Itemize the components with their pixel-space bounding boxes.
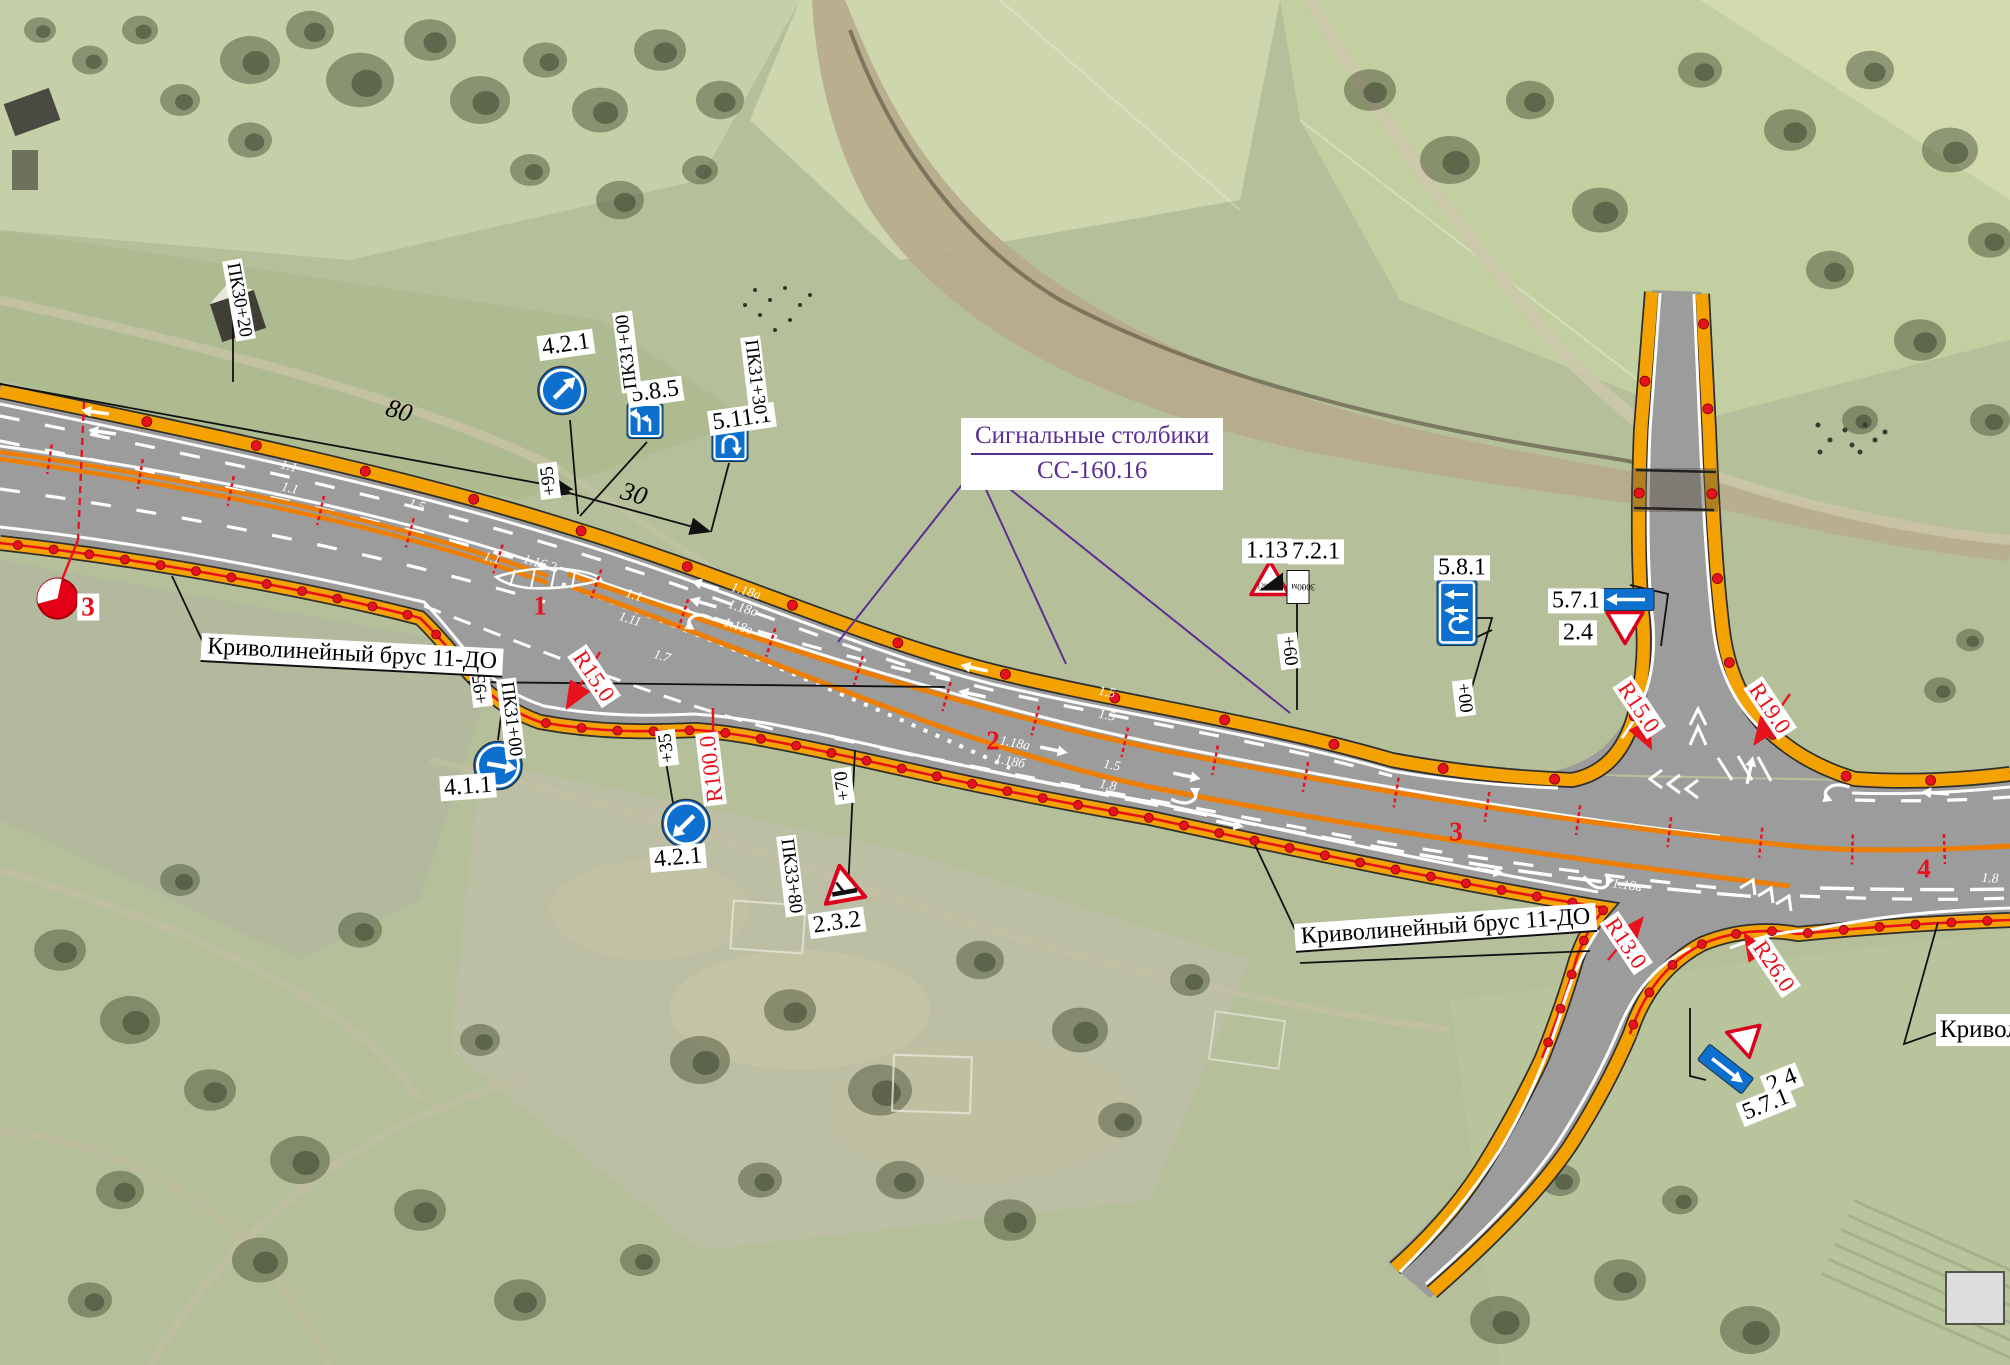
marking-label-1-8: 1.8 xyxy=(1981,871,1999,885)
sign-4-2-1-keep-right xyxy=(535,364,589,423)
sign-1-13-steep-descent: 12% xyxy=(1249,559,1291,604)
sign-code-label-421-south: 4.2.1 xyxy=(649,843,707,873)
marking-label-1-5: 1.5 xyxy=(1097,684,1116,700)
sign-code-label-113: 1.13 xyxy=(1242,538,1292,563)
marking-label-1-5: 1.5 xyxy=(1102,757,1121,773)
signal-posts-callout: Сигнальные столбики СС-160.16 xyxy=(961,418,1223,490)
bridge xyxy=(1632,468,1718,512)
hundred-meter-mark-3: 3 xyxy=(1449,819,1463,846)
aerial-plan-drawing xyxy=(0,0,2010,1365)
marking-label-1-5: 1.5 xyxy=(1097,707,1116,723)
sign-code-label-581: 5.8.1 xyxy=(1434,555,1490,580)
sign-code-label-571-north: 5.7.1 xyxy=(1548,588,1604,613)
sign-7-2-1-distance-plate: ↑3000м xyxy=(1287,570,1310,604)
signal-posts-model: СС-160.16 xyxy=(1037,457,1147,484)
barrier-label-clipped: Кривол xyxy=(1936,1014,2010,1046)
marking-label-1-1: 1.1 xyxy=(280,479,300,496)
sign-2-3-2-side-road-junction xyxy=(816,859,869,913)
distance-value: 3000м xyxy=(1291,582,1315,592)
sign-5-8-1-lane-start xyxy=(1436,579,1478,652)
offset-label-60: +60 xyxy=(1277,632,1301,670)
hundred-meter-mark-1: 1 xyxy=(533,593,547,620)
offset-label-00: +00 xyxy=(1452,679,1476,717)
offset-label-70: +70 xyxy=(831,767,855,805)
road-plan-canvas: 12% ↑3000м 4.2.1 5.8.5 5.11.1 1.13 7.2.1… xyxy=(0,0,2010,1365)
offset-label-35: +35 xyxy=(655,729,679,767)
sign-5-7-1-junction-exit-north xyxy=(1599,588,1655,617)
sign-code-label-411: 4.1.1 xyxy=(439,772,497,801)
marking-label-1-1: 1.1 xyxy=(279,457,299,474)
hundred-meter-mark-4: 4 xyxy=(1917,856,1931,883)
sign-code-label-24-north: 2.4 xyxy=(1559,620,1597,645)
km-post-number: 3 xyxy=(77,594,99,621)
marking-label-1-8: 1.8 xyxy=(1098,777,1117,793)
signal-posts-title: Сигнальные столбики xyxy=(971,420,1213,455)
sign-code-label-721: 7.2.1 xyxy=(1288,539,1344,564)
offset-label-95-north: +95 xyxy=(537,462,561,500)
grade-value: 12% xyxy=(1257,583,1270,591)
